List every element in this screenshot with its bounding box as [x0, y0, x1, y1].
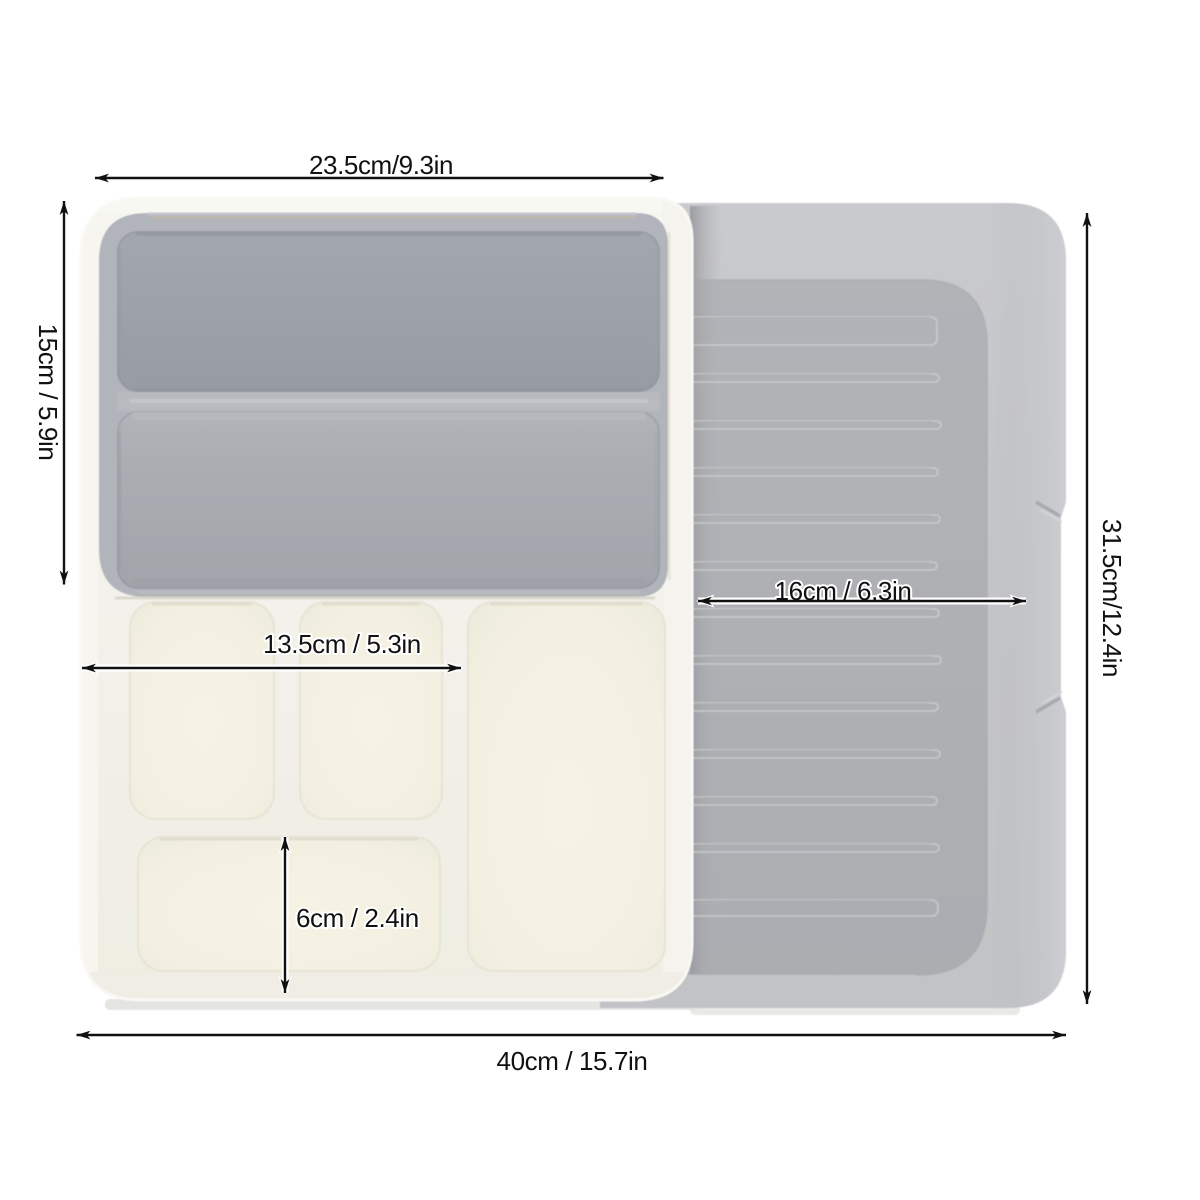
svg-text:31.5cm/12.4in: 31.5cm/12.4in	[1097, 519, 1127, 677]
svg-text:15cm / 5.9in: 15cm / 5.9in	[33, 324, 63, 461]
svg-text:6cm / 2.4in: 6cm / 2.4in	[296, 903, 419, 933]
svg-text:13.5cm / 5.3in: 13.5cm / 5.3in	[263, 629, 421, 659]
svg-text:23.5cm/9.3in: 23.5cm/9.3in	[309, 150, 453, 180]
svg-text:40cm / 15.7in: 40cm / 15.7in	[497, 1046, 648, 1076]
